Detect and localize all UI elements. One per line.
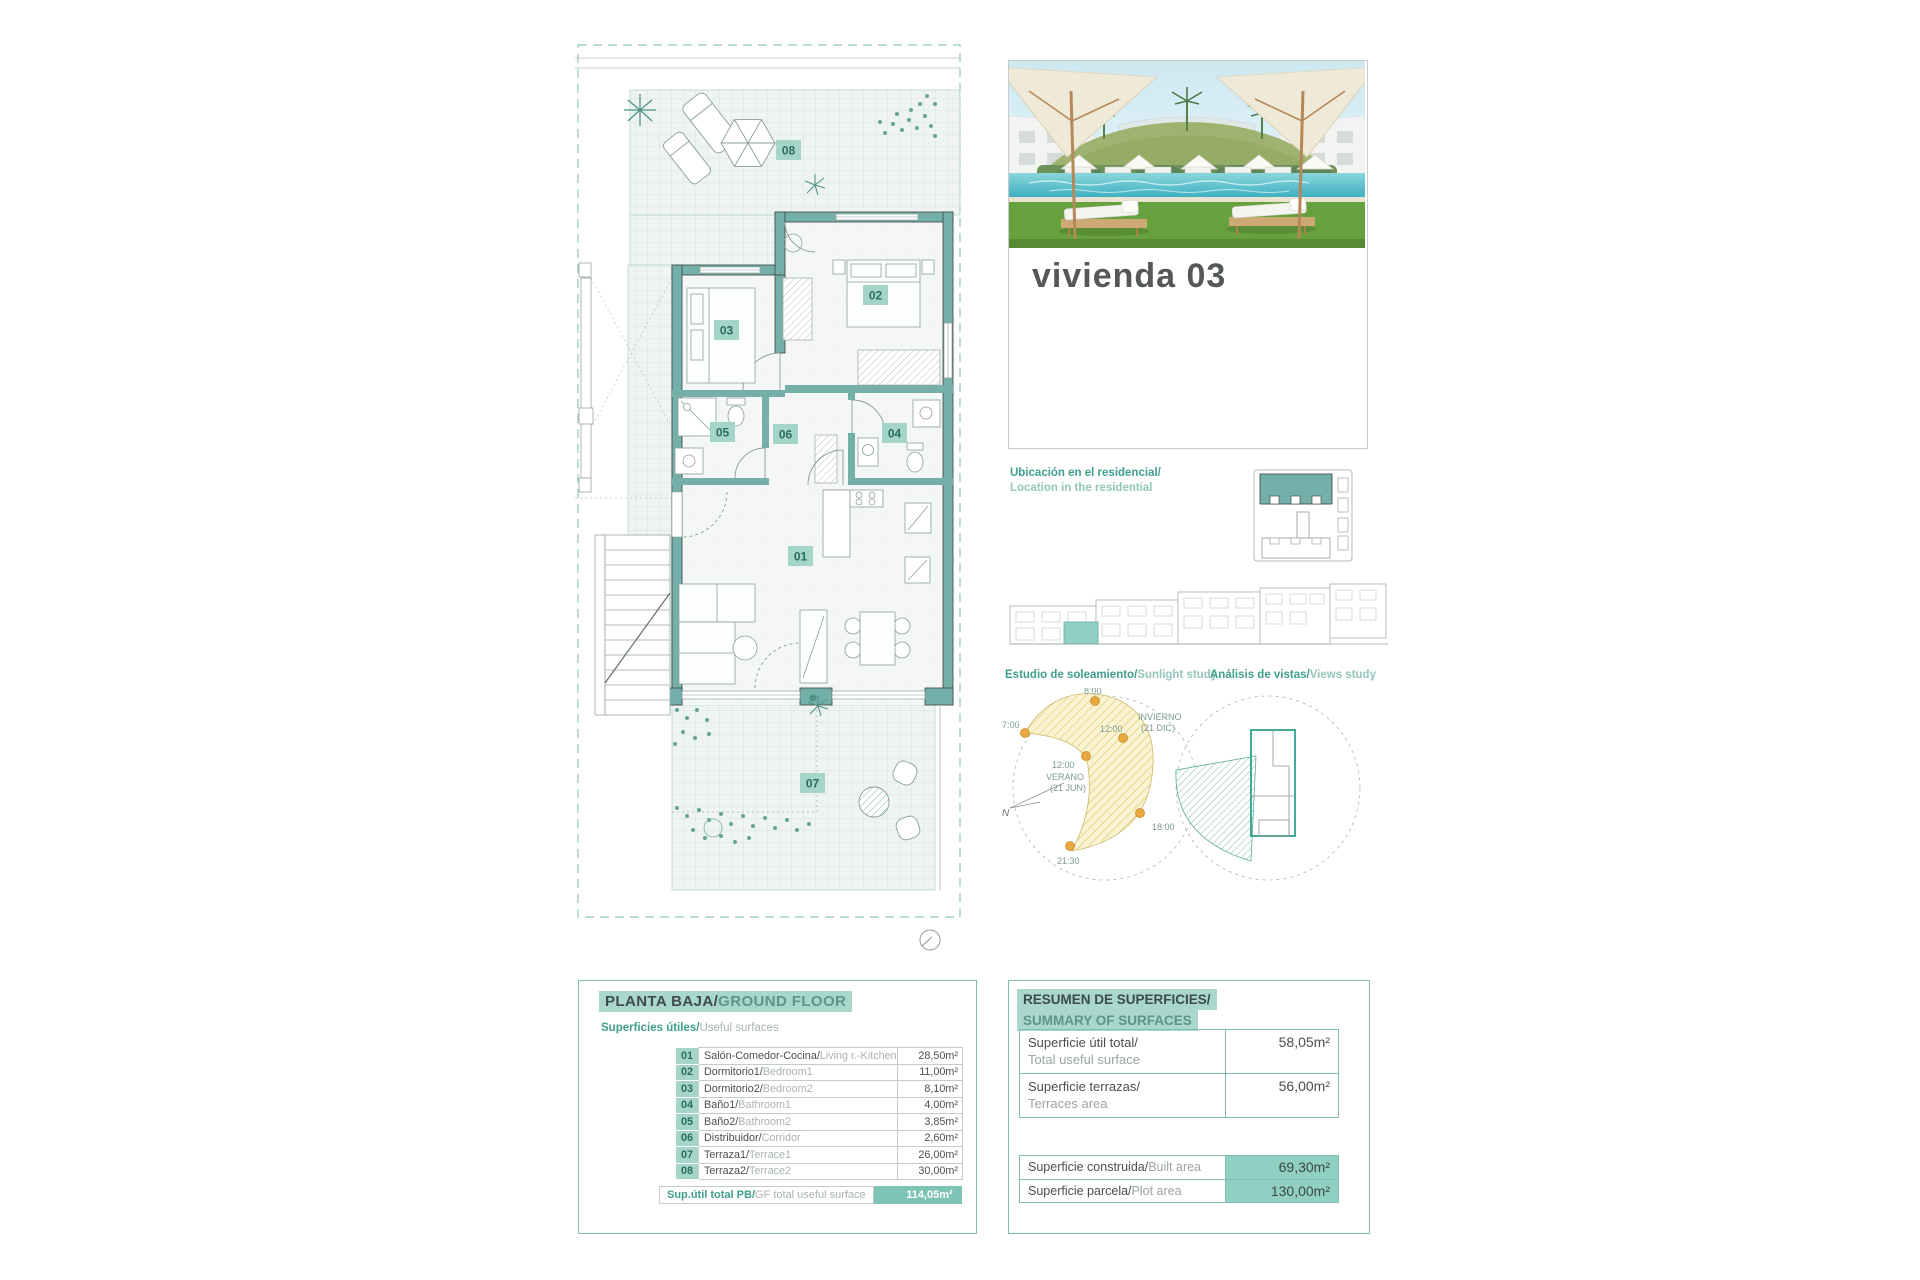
summary-panel: RESUMEN DE SUPERFICIES/ SUMMARY OF SURFA… (1008, 980, 1370, 1234)
summer-label: VERANO (1046, 772, 1084, 782)
table-row: 03Dormitorio2/Bedroom28,10m² (676, 1081, 963, 1098)
summary-title: RESUMEN DE SUPERFICIES/ SUMMARY OF SURFA… (1017, 989, 1217, 1031)
location-label-en: Location in the residential (1010, 482, 1153, 494)
plan-sheet: 08 02 03 05 06 04 01 07 (0, 0, 1920, 1280)
views-study-title: Análisis de vistas/Views study (1210, 668, 1376, 683)
plot-area-value: 130,00m² (1225, 1180, 1338, 1203)
table-row: 08Terraza2/Terrace230,00m² (676, 1163, 963, 1180)
badge-bedroom1: 02 (863, 285, 888, 305)
stairs (595, 535, 670, 715)
sunlight-study-title: Estudio de soleamiento/Sunlight study (1005, 668, 1217, 683)
total-row: Sup.útil total PB/GF total useful surfac… (659, 1186, 962, 1204)
badge-terrace1: 07 (800, 773, 825, 793)
table-row: 07Terraza1/Terrace126,00m² (676, 1147, 963, 1164)
ground-floor-panel: PLANTA BAJA/GROUND FLOOR Superficies úti… (578, 980, 977, 1234)
views-study-diagram (1163, 688, 1378, 888)
badge-living: 01 (788, 546, 813, 566)
location-label: Ubicación en el residencial/ Location in… (1010, 466, 1161, 496)
total-value: 114,05m² (874, 1186, 962, 1204)
summary-table-useful: Superficie útil total/Total useful surfa… (1019, 1029, 1339, 1118)
svg-text:03: 03 (720, 324, 734, 338)
sun-label-7: 7:00 (1002, 720, 1020, 730)
table-row: 01Salón-Comedor-Cocina/Living r.-Kitchen… (676, 1048, 963, 1065)
ground-floor-title: PLANTA BAJA/GROUND FLOOR (599, 991, 852, 1012)
site-plan-mini (1252, 468, 1357, 563)
svg-text:08: 08 (782, 144, 796, 158)
table-row: Superficie parcela/Plot area 130,00m² (1020, 1179, 1338, 1203)
badge-terrace2: 08 (776, 140, 801, 160)
sun-label-8: 8:00 (1084, 688, 1102, 696)
summer-date: (21 JUN) (1050, 783, 1086, 793)
view-fan (1176, 756, 1256, 861)
badge-bathroom1: 04 (882, 423, 907, 443)
neighbour-walls (579, 263, 593, 492)
useful-surfaces-subtitle: Superficies útiles/Useful surfaces (601, 1021, 779, 1036)
built-area-value: 69,30m² (1225, 1156, 1338, 1179)
table-row: Superficie terrazas/Terraces area 56,00m… (1020, 1073, 1338, 1117)
elevation-drawing (1008, 582, 1393, 654)
table-row: Superficie construida/Built area 69,30m² (1020, 1156, 1338, 1179)
view-building (1251, 730, 1295, 836)
sun-path-band (1025, 694, 1153, 851)
svg-text:07: 07 (806, 777, 820, 791)
photo-card: vivienda 03 (1008, 60, 1368, 449)
svg-text:04: 04 (888, 427, 902, 441)
svg-text:05: 05 (716, 426, 730, 440)
pool-render-photo (1009, 61, 1365, 248)
badge-corridor: 06 (773, 424, 798, 444)
unit-title: vivienda 03 (1032, 257, 1226, 296)
location-label-es: Ubicación en el residencial/ (1010, 467, 1161, 479)
table-row: 05Baño2/Bathroom23,85m² (676, 1114, 963, 1131)
north-label: N (1002, 808, 1010, 819)
sun-label-12w: 12:00 (1100, 724, 1123, 734)
svg-text:06: 06 (779, 428, 793, 442)
room-surface-table: 01Salón-Comedor-Cocina/Living r.-Kitchen… (676, 1047, 963, 1180)
badge-bathroom2: 05 (710, 422, 735, 442)
table-row: 02Dormitorio1/Bedroom111,00m² (676, 1064, 963, 1081)
walkway-lines (575, 58, 960, 68)
terrace-1-floor (672, 705, 935, 890)
svg-text:02: 02 (869, 289, 883, 303)
badge-bedroom2: 03 (714, 320, 739, 340)
useful-total-value: 58,05m² (1225, 1030, 1338, 1073)
sun-label-2130: 21:30 (1057, 856, 1080, 866)
terraces-value: 56,00m² (1225, 1074, 1338, 1117)
svg-text:01: 01 (794, 550, 808, 564)
summary-table-built: Superficie construida/Built area 69,30m²… (1019, 1155, 1339, 1203)
table-row: 06Distribuidor/Corridor2,60m² (676, 1130, 963, 1147)
sun-label-12s: 12:00 (1052, 760, 1075, 770)
table-row: 04Baño1/Bathroom14,00m² (676, 1097, 963, 1114)
table-row: Superficie útil total/Total useful surfa… (1020, 1030, 1338, 1073)
section-marker (920, 930, 940, 950)
floor-plan: 08 02 03 05 06 04 01 07 (575, 38, 975, 958)
